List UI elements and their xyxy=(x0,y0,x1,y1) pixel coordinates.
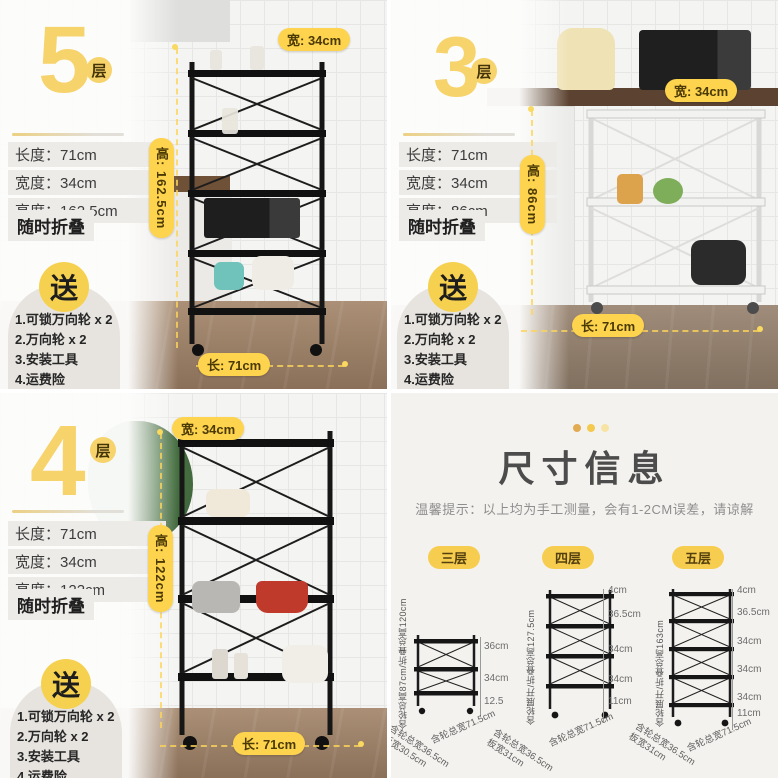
diagram-3-segment: 34cm xyxy=(484,673,508,684)
panel-3-tier: 3 层 长度：71cm 宽度：34cm 高度：86cm 随时折叠 送 1.可锁万… xyxy=(391,0,778,389)
black-pot xyxy=(691,240,746,285)
width-badge: 宽: 34cm xyxy=(278,28,350,51)
tier-number: 5 xyxy=(38,20,91,101)
height-badge: 高: 122cm xyxy=(148,525,173,612)
diagram-5-segment: 4cm xyxy=(737,585,756,596)
spec-width: 宽度：34cm xyxy=(8,549,166,574)
teal-kettle xyxy=(214,262,244,290)
fold-note: 随时折叠 xyxy=(399,210,485,241)
diagram-4-segment: 34cm xyxy=(608,644,632,655)
decor-dots xyxy=(573,424,609,432)
gift-box: 送 1.可锁万向轮 x 2 2.万向轮 x 2 3.安装工具 4.运费险 xyxy=(397,284,509,389)
diagram-3-measure-line xyxy=(480,637,481,717)
measure-line-height xyxy=(176,48,178,348)
diagram-4-segment: 34cm xyxy=(608,674,632,685)
gift-item: 1.可锁万向轮 x 2 xyxy=(404,310,502,330)
measure-dot xyxy=(358,741,364,747)
diagram-5-segment: 34cm xyxy=(737,636,761,647)
measure-dot xyxy=(342,361,348,367)
gift-item: 3.安装工具 xyxy=(15,350,113,370)
cream-pot xyxy=(206,489,250,517)
diagram-5-measure-line xyxy=(732,589,733,730)
diagram-3-height-label: 含轮总高87cm/折叠总高120cm xyxy=(396,579,409,729)
product-size-infographic: 5 层 长度：71cm 宽度：34cm 高度：162.5cm 随时折叠 送 1.… xyxy=(0,0,778,778)
spec-length: 长度：71cm xyxy=(8,142,166,167)
measure-dot xyxy=(528,106,534,112)
divider xyxy=(12,133,124,136)
gift-badge: 送 xyxy=(428,262,478,312)
vegetable xyxy=(653,178,683,204)
tab-4-tier: 四层 xyxy=(542,546,594,569)
tier-unit-badge: 层 xyxy=(86,57,112,83)
width-badge: 宽: 34cm xyxy=(172,417,244,440)
rice-cooker xyxy=(252,256,294,290)
diagram-5-segment: 34cm xyxy=(737,664,761,675)
diagram-4-shelf xyxy=(545,588,615,722)
diagram-3-shelf xyxy=(413,631,479,717)
gift-item: 2.万向轮 x 2 xyxy=(15,330,113,350)
diagram-5-height-label: 含轮展开/折叠总高163cm xyxy=(653,587,666,727)
diagram-4-segment: 4cm xyxy=(608,585,627,596)
measure-dot xyxy=(172,44,178,50)
measure-dot xyxy=(157,429,163,435)
gift-item: 2.万向轮 x 2 xyxy=(17,727,115,747)
toaster xyxy=(192,581,240,613)
fold-note: 随时折叠 xyxy=(8,589,94,620)
red-casserole xyxy=(256,581,308,613)
width-badge: 宽: 34cm xyxy=(665,79,737,102)
size-info-title: 尺寸信息 xyxy=(391,440,778,492)
diagram-5-segment: 34cm xyxy=(737,692,761,703)
diagram-4-measure-line xyxy=(603,589,604,722)
gift-badge: 送 xyxy=(41,659,91,709)
diagram-4-depth-labels: 含轮总宽36.5cm 板宽31cm xyxy=(484,727,555,778)
gift-box: 送 1.可锁万向轮 x 2 2.万向轮 x 2 3.安装工具 4.运费险 xyxy=(10,681,122,778)
spec-width: 宽度：34cm xyxy=(8,170,166,195)
diagram-4-height-label: 含轮展开/折叠总高127.5cm xyxy=(524,585,537,725)
size-info-panel: 尺寸信息 温馨提示：以上均为手工测量，会有1-2CM误差，请谅解 三层 四层 五… xyxy=(391,393,778,778)
microwave xyxy=(204,198,300,238)
tier-unit-badge: 层 xyxy=(90,437,116,463)
tab-3-tier: 三层 xyxy=(428,546,480,569)
gift-item: 3.安装工具 xyxy=(404,350,502,370)
tier-number: 4 xyxy=(30,419,86,504)
length-badge: 长: 71cm xyxy=(198,353,270,376)
divider xyxy=(403,133,515,136)
gift-item: 4.运费险 xyxy=(15,370,113,389)
gift-item: 2.万向轮 x 2 xyxy=(404,330,502,350)
panel-5-tier: 5 层 长度：71cm 宽度：34cm 高度：162.5cm 随时折叠 送 1.… xyxy=(0,0,387,389)
size-info-tip: 温馨提示：以上均为手工测量，会有1-2CM误差，请谅解 xyxy=(391,499,778,518)
gift-item: 4.运费险 xyxy=(17,767,115,778)
tier-unit-badge: 层 xyxy=(471,58,497,84)
gift-badge: 送 xyxy=(39,262,89,312)
jar xyxy=(210,50,222,70)
measure-dot xyxy=(757,326,763,332)
diagram-5-shelf xyxy=(668,587,735,730)
gift-item: 1.可锁万向轮 x 2 xyxy=(15,310,113,330)
gift-item: 4.运费险 xyxy=(404,370,502,389)
height-badge: 高: 86cm xyxy=(520,155,545,234)
divider xyxy=(12,510,124,513)
length-badge: 长: 71cm xyxy=(233,732,305,755)
fruit-jar xyxy=(617,174,643,204)
panel-4-tier: 4 层 长度：71cm 宽度：34cm 高度：122cm 随时折叠 送 1.可锁… xyxy=(0,393,387,778)
diagram-5-segment: 36.5cm xyxy=(737,607,770,618)
diagram-4-segment: 36.5cm xyxy=(608,609,641,620)
jar xyxy=(222,108,238,134)
gift-item: 1.可锁万向轮 x 2 xyxy=(17,707,115,727)
jar xyxy=(250,46,264,70)
diagram-4-segment: 11cm xyxy=(608,696,632,707)
tab-5-tier: 五层 xyxy=(672,546,724,569)
shelf-3-tier-white xyxy=(583,102,769,316)
fold-note: 随时折叠 xyxy=(8,210,94,241)
spec-length: 长度：71cm xyxy=(8,521,166,546)
gift-item: 3.安装工具 xyxy=(17,747,115,767)
diagram-3-segment: 12.5 xyxy=(484,696,503,707)
rice-cooker xyxy=(282,645,328,683)
jar xyxy=(234,653,248,679)
length-badge: 长: 71cm xyxy=(572,314,644,337)
height-badge: 高: 162.5cm xyxy=(149,138,174,238)
diagram-3-segment: 36cm xyxy=(484,641,508,652)
gift-box: 送 1.可锁万向轮 x 2 2.万向轮 x 2 3.安装工具 4.运费险 xyxy=(8,284,120,389)
jar xyxy=(212,649,228,679)
